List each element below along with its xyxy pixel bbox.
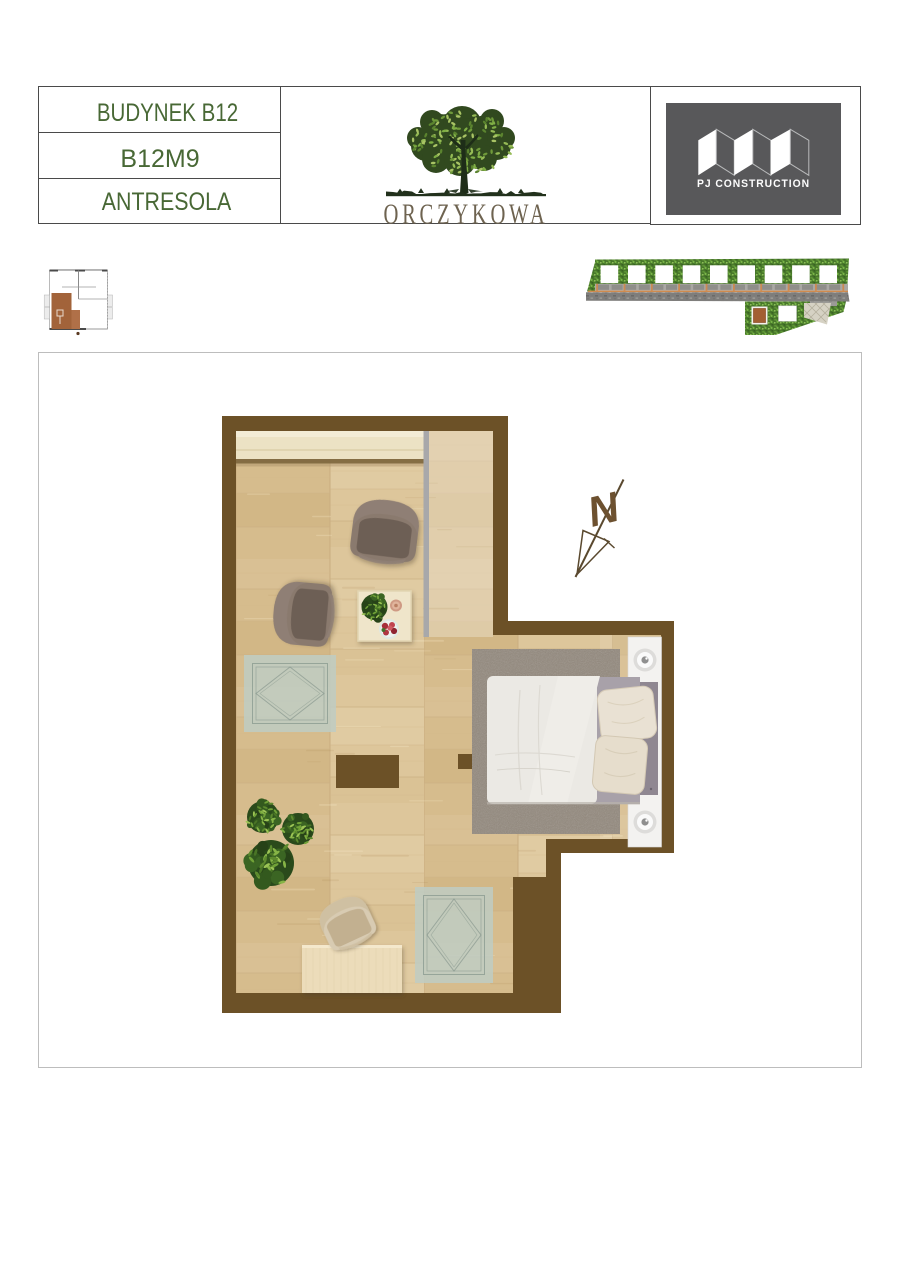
svg-text:ORCZYKOWA: ORCZYKOWA [384,200,549,225]
svg-text:PJ CONSTRUCTION: PJ CONSTRUCTION [697,178,810,190]
